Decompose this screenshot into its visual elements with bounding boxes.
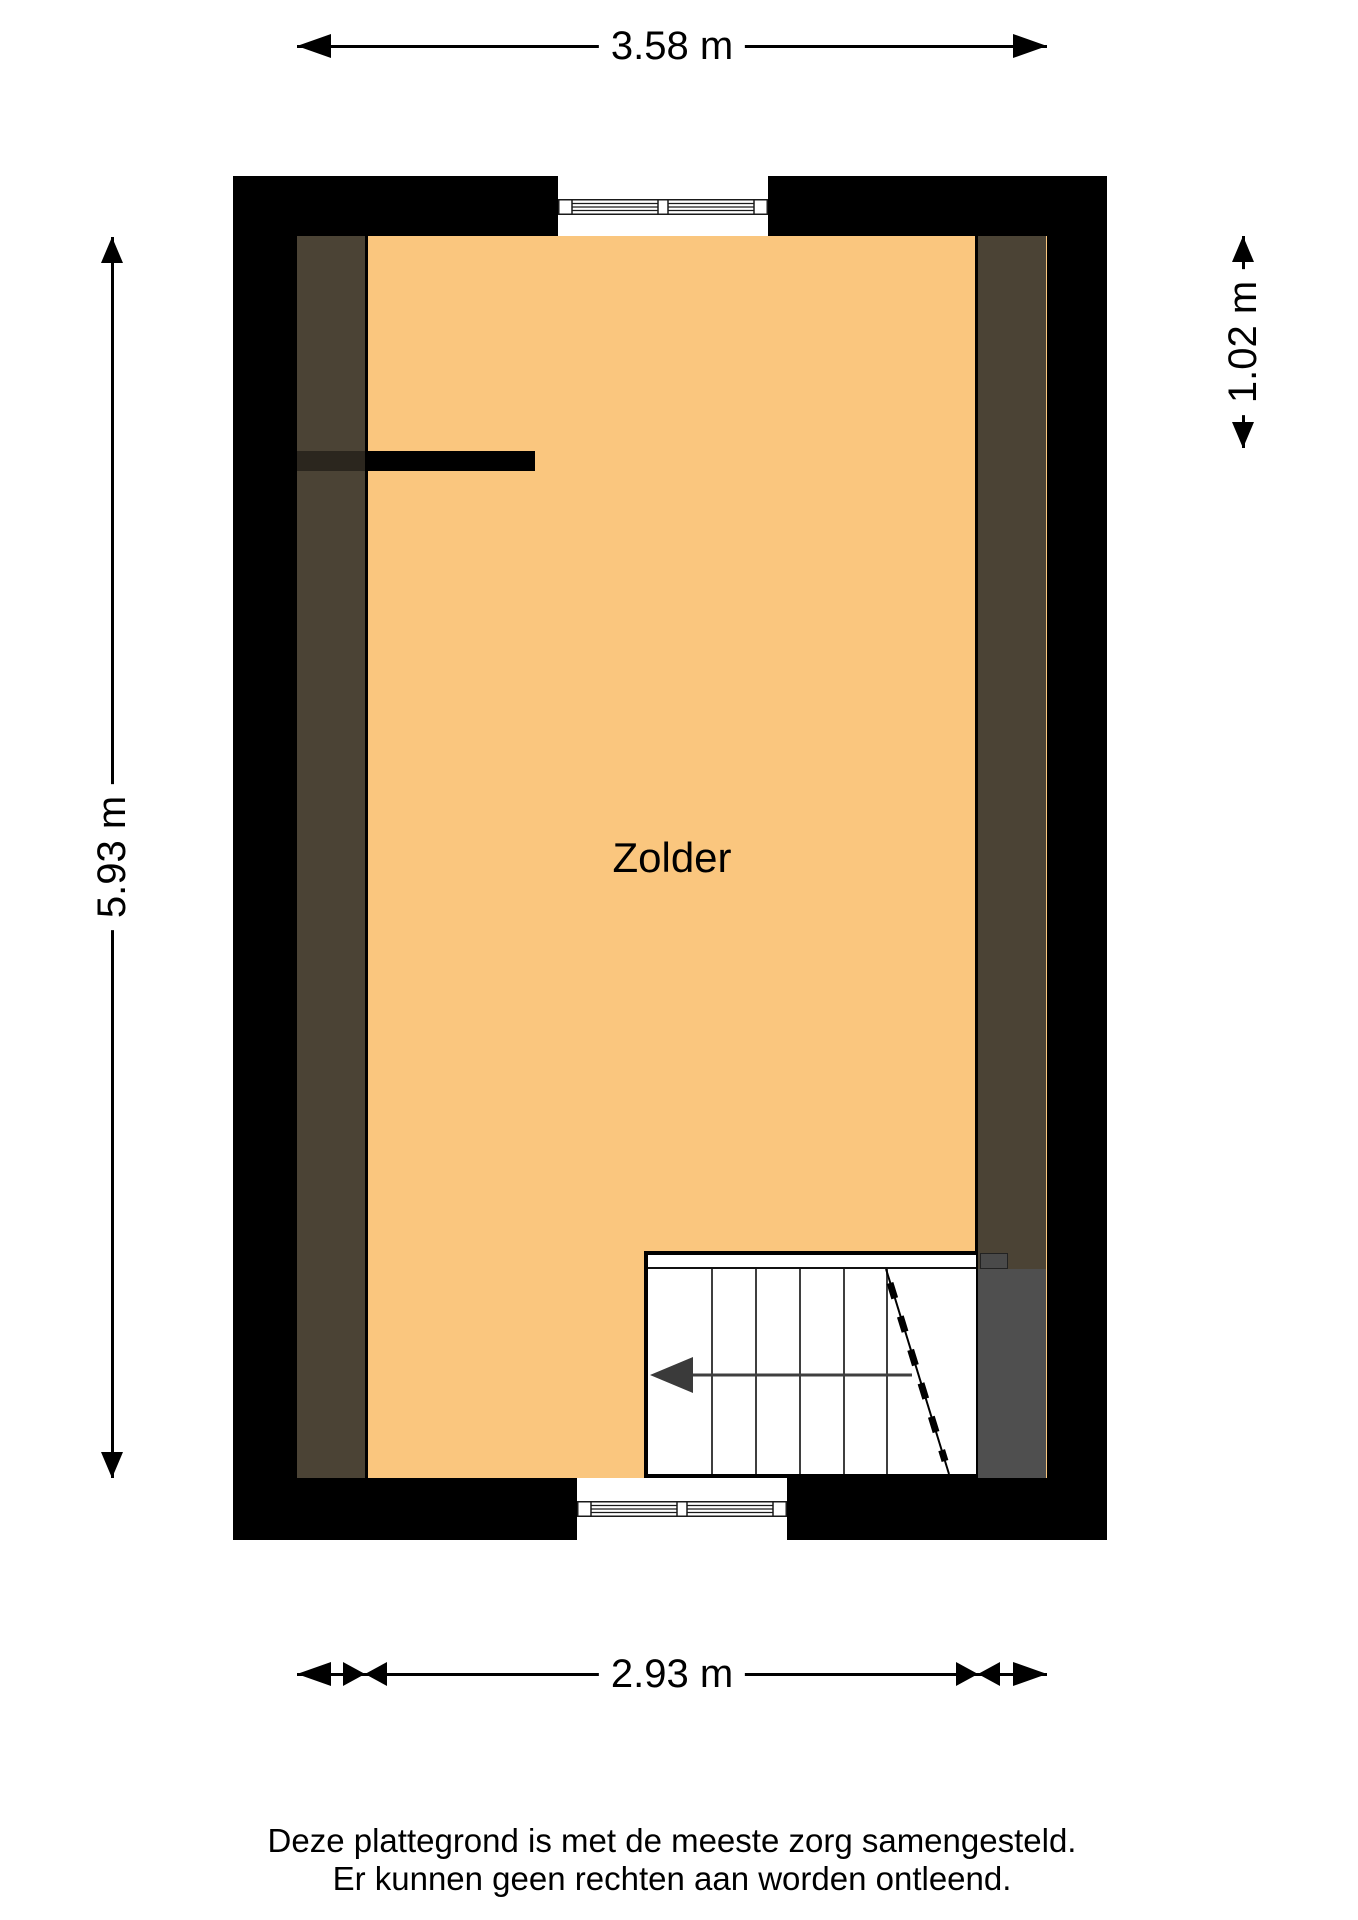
stair-direction-arrow-icon: [650, 1357, 693, 1393]
eaves-zone-left: [297, 236, 365, 1478]
disclaimer-line-2: Er kunnen geen rechten aan worden ontlee…: [333, 1860, 1012, 1898]
eaves-zone-right: [978, 236, 1046, 1269]
dim-arrowhead-icon: [101, 1452, 123, 1478]
stairwell-void: [978, 1269, 1046, 1478]
knee-line-left: [365, 236, 368, 1478]
dim-arrowhead-icon: [1232, 236, 1254, 262]
dim-right-label: 1.02 m: [1219, 269, 1267, 415]
dim-arrowhead-icon: [297, 34, 331, 58]
stair-annotations: [644, 1251, 978, 1478]
dim-arrowhead-icon: [297, 1662, 331, 1686]
room-label: Zolder: [612, 834, 731, 882]
stair-newel: [980, 1253, 1008, 1269]
dim-arrowhead-icon: [101, 237, 123, 263]
dim-tick-icon: [365, 1662, 387, 1686]
dim-tick-icon: [956, 1662, 978, 1686]
dim-tick-icon: [978, 1662, 1000, 1686]
disclaimer-line-1: Deze plattegrond is met de meeste zorg s…: [268, 1822, 1077, 1860]
dim-arrowhead-icon: [1013, 34, 1047, 58]
dim-tick-icon: [343, 1662, 365, 1686]
knee-wall-stub: [368, 451, 535, 471]
dim-arrowhead-icon: [1013, 1662, 1047, 1686]
stair-break-line: [886, 1269, 949, 1474]
dim-bottom-label: 2.93 m: [599, 1650, 745, 1698]
dim-arrowhead-icon: [1232, 422, 1254, 448]
knee-wall-stub-overlay: [297, 451, 368, 471]
window-top: [558, 199, 768, 215]
dim-top-label: 3.58 m: [599, 22, 745, 70]
window-bottom: [577, 1501, 787, 1517]
dim-left-label: 5.93 m: [88, 784, 136, 930]
floorplan-page: Zolder 3.58 m 5.93 m 1.02 m 2.93 m Deze …: [0, 0, 1358, 1920]
